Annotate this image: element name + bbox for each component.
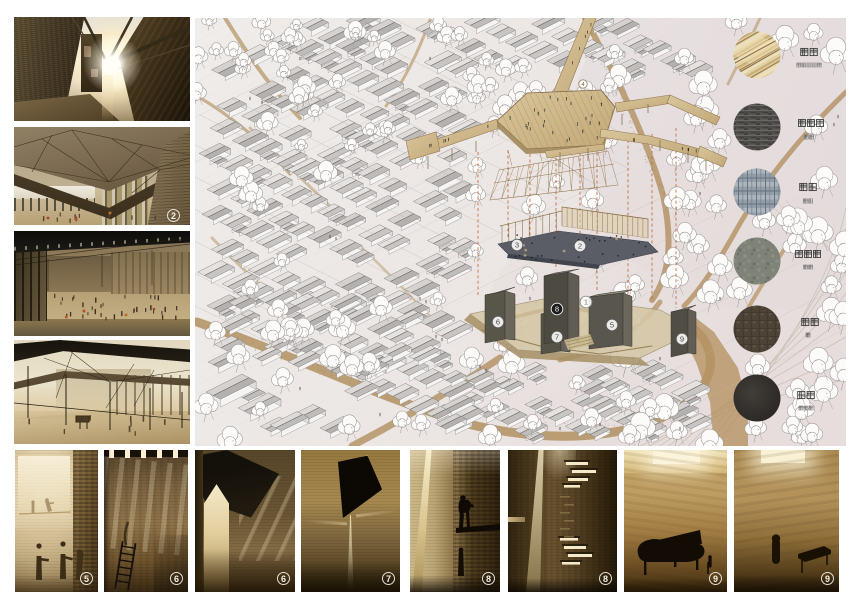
svg-text:1: 1 (584, 298, 588, 307)
svg-text:9: 9 (680, 335, 684, 344)
svg-text:4: 4 (581, 82, 584, 88)
svg-text:5: 5 (610, 321, 614, 330)
svg-text:8: 8 (555, 305, 559, 314)
svg-text:2: 2 (578, 242, 582, 251)
svg-text:7: 7 (555, 333, 559, 342)
svg-text:6: 6 (496, 318, 500, 327)
svg-text:3: 3 (515, 241, 519, 250)
